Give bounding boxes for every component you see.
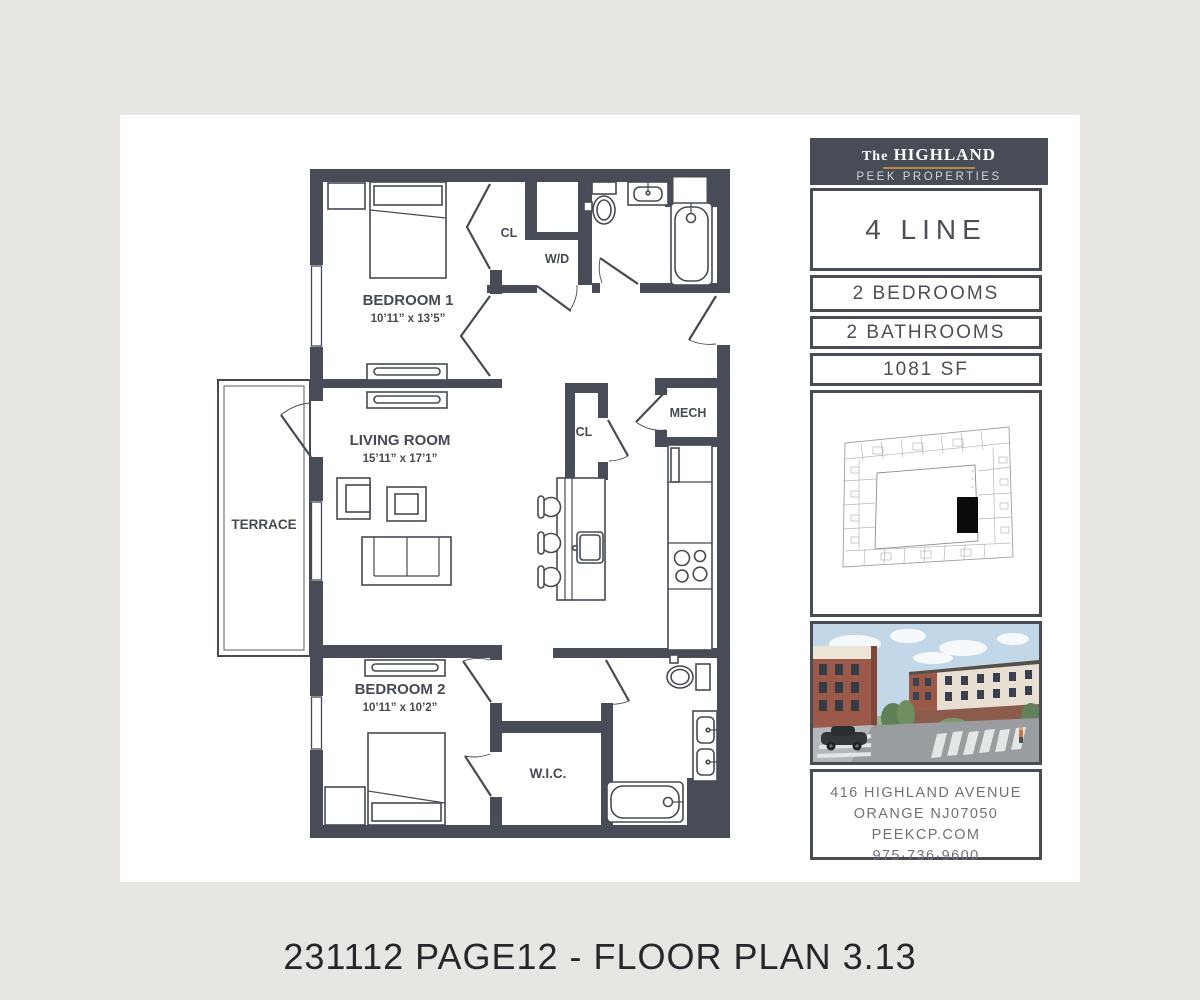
area-label: 1081 SF: [883, 359, 969, 381]
toilet-icon: [592, 182, 616, 224]
gold-rule: [883, 167, 975, 169]
unit-location-marker: [957, 497, 978, 533]
mech-door: [636, 390, 667, 430]
sink-icon: [628, 182, 668, 205]
mech-label: MECH: [670, 406, 707, 420]
tp-holder-icon: [584, 202, 592, 211]
entry-door: [689, 296, 716, 344]
living-room-label: LIVING ROOM: [350, 432, 451, 449]
bathrooms-box: 2 BATHROOMS: [810, 316, 1042, 349]
bathroom2-door: [606, 660, 629, 704]
closet2-label: CL: [576, 425, 593, 439]
bedroom1-label: BEDROOM 1: [363, 292, 454, 309]
wic-door: [465, 754, 491, 796]
side-table-icon: [387, 487, 426, 521]
bathroom1-door: [599, 258, 638, 284]
living-room-dims: 15’11” x 17’1”: [363, 453, 438, 465]
site-plan-drawing: [821, 401, 1031, 606]
window: [312, 502, 322, 580]
bedroom1-door: [461, 296, 490, 376]
address-line2: ORANGE NJ07050: [854, 804, 999, 825]
footer-caption: 231112 PAGE12 - FLOOR PLAN 3.13: [0, 936, 1200, 978]
console-icon: [367, 392, 447, 408]
double-vanity-icon: [693, 711, 717, 781]
closet1-bifold-door: [467, 184, 490, 269]
area-box: 1081 SF: [810, 353, 1042, 386]
pedestrian: [1019, 726, 1023, 743]
wic-label: W.I.C.: [530, 766, 567, 781]
floor-plan-drawing: BEDROOM 1 10’11” x 13’5” LIVING ROOM 15’…: [120, 115, 820, 882]
nightstand-icon: [328, 183, 365, 209]
bedrooms-label: 2 BEDROOMS: [853, 283, 1000, 305]
building-photo: [813, 624, 1039, 762]
address-line1: 416 HIGHLAND AVENUE: [830, 783, 1022, 804]
bedroom2-label: BEDROOM 2: [355, 681, 446, 698]
website-link: PEEKCP.COM: [872, 825, 981, 846]
armchair-icon: [337, 478, 370, 519]
bathtub-icon: [607, 782, 683, 822]
fridge-icon: [671, 448, 679, 482]
site-plan-box: [810, 390, 1042, 617]
dresser-icon: [365, 660, 445, 676]
kitchen-counter-icon: [668, 445, 712, 650]
bedrooms-box: 2 BEDROOMS: [810, 275, 1042, 312]
bedroom2-dims: 10’11” x 10’2”: [363, 702, 438, 714]
brand-name-prefix: The: [862, 149, 888, 164]
bed-icon: [370, 182, 446, 278]
window: [312, 697, 322, 749]
bed-icon: [368, 733, 445, 825]
phone-number: 975·736·9600: [872, 846, 979, 867]
laundry-label: W/D: [545, 252, 569, 266]
closet2-door: [608, 420, 628, 461]
contact-block: 416 HIGHLAND AVENUE ORANGE NJ07050 PEEKC…: [810, 769, 1042, 860]
brand-header: The HIGHLAND PEEK PROPERTIES: [810, 138, 1048, 185]
building-left: [813, 646, 877, 728]
bedroom2-door: [463, 658, 491, 702]
brand-name-main: HIGHLAND: [894, 145, 996, 164]
closet1-label: CL: [501, 226, 518, 240]
terrace-door: [281, 403, 311, 457]
bar-stool-icon: [538, 496, 561, 588]
sofa-icon: [362, 537, 451, 585]
unit-line-box: 4 LINE: [810, 188, 1042, 271]
kitchen-island-icon: [557, 478, 605, 600]
building-photo-box: [810, 621, 1042, 765]
bath-niche: [673, 177, 707, 203]
nightstand-icon: [325, 787, 365, 825]
terrace-label: TERRACE: [231, 517, 296, 532]
bathrooms-label: 2 BATHROOMS: [847, 322, 1006, 344]
brand-name: The HIGHLAND: [810, 145, 1048, 165]
dresser-icon: [367, 364, 447, 380]
flyer-card: BEDROOM 1 10’11” x 13’5” LIVING ROOM 15’…: [120, 115, 1080, 882]
laundry-door: [537, 285, 577, 311]
bedroom1-dims: 10’11” x 13’5”: [371, 313, 446, 325]
tp-holder-icon: [670, 655, 678, 663]
info-panel: The HIGHLAND PEEK PROPERTIES 4 LINE 2 BE…: [810, 115, 1048, 882]
unit-line-label: 4 LINE: [865, 214, 987, 246]
brand-subtitle: PEEK PROPERTIES: [810, 171, 1048, 183]
bathtub-icon: [671, 203, 712, 285]
window: [312, 266, 322, 346]
toilet-icon: [667, 664, 710, 690]
